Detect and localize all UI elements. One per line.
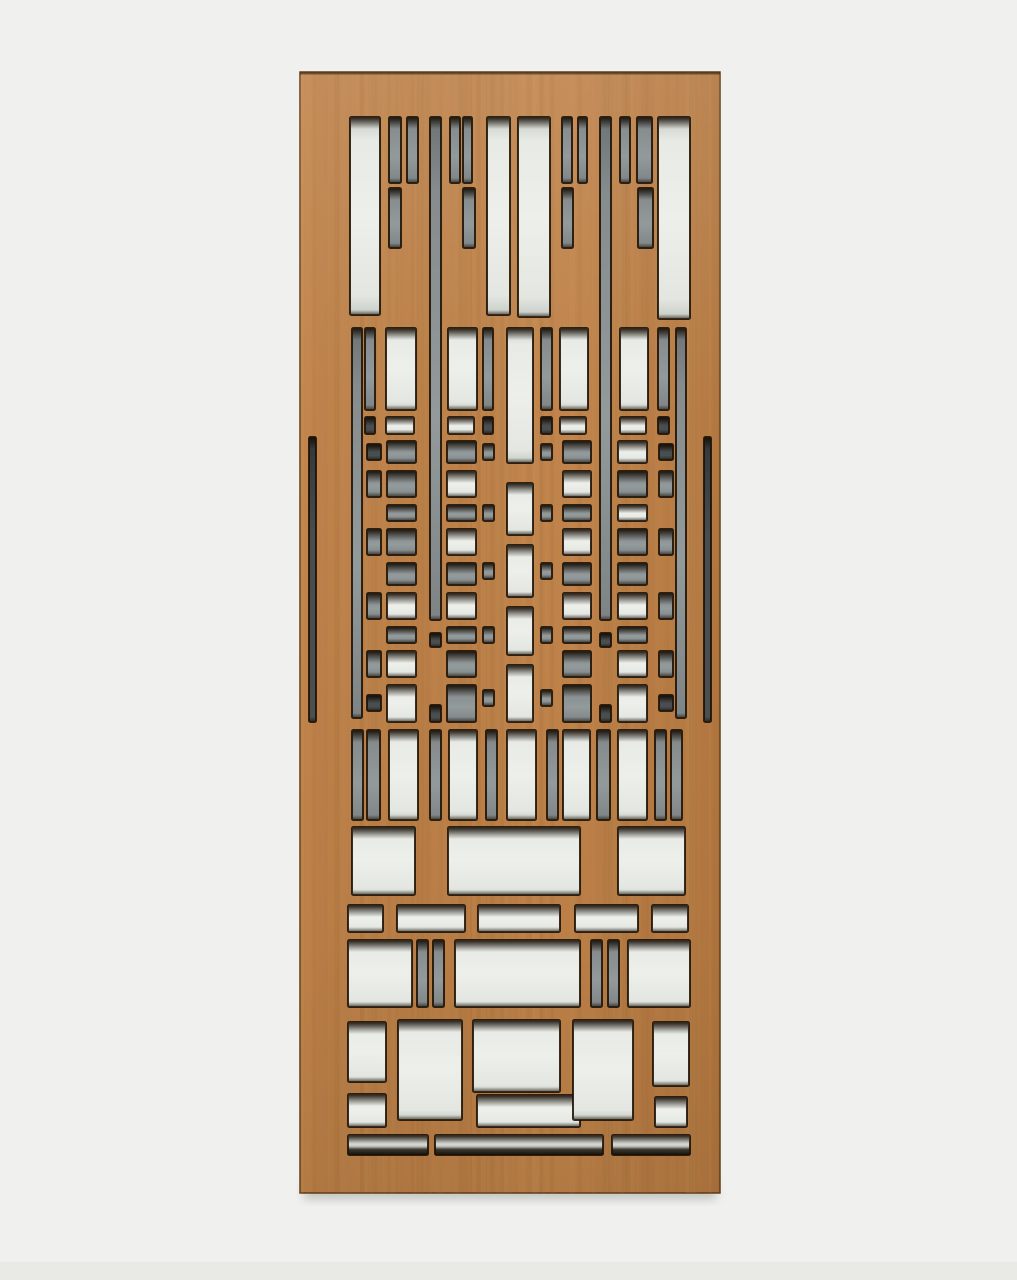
cutout-open-gray [659,471,673,497]
cutout-frosted-white [618,593,647,619]
cutout-frosted-strip [348,1135,428,1155]
cutout-frosted-white [387,593,416,619]
cutout-open-gray [591,940,602,1007]
cutout-open-gray [483,563,494,579]
cutout-open-gray [562,117,572,183]
cutout-frosted-white [518,117,550,317]
cutout-open-gray [541,505,552,521]
cutout-frosted-white [563,471,591,497]
cutout-open-gray [417,940,428,1007]
cutout-shadow-slot [541,417,552,434]
cutout-open-gray [367,529,381,555]
cutout-frosted-strip [612,1135,690,1155]
cutout-frosted-white [652,905,688,932]
cutout-open-gray [563,505,591,521]
cutout-open-gray [387,471,416,497]
cutout-open-gray [638,188,653,248]
cutout-open-gray [430,730,441,820]
cutout-open-gray [447,563,476,585]
cutout-frosted-white [618,441,647,463]
cutout-open-gray [541,627,552,643]
cutout-frosted-white [655,1097,687,1127]
cutout-frosted-white [398,1020,462,1120]
cutout-open-gray [447,651,476,677]
cutout-frosted-white [449,730,477,820]
cutout-open-gray [365,328,375,410]
photo-background-edge [0,1262,1017,1280]
cutout-frosted-white [563,529,591,555]
cutout-shadow-slot [367,444,381,460]
cutout-open-gray [387,505,416,521]
cutout-open-gray [430,117,441,620]
cutout-frosted-white [348,1094,386,1127]
cutout-open-gray [563,685,591,722]
cutout-frosted-white [389,730,418,820]
cutout-frosted-white [448,328,477,410]
cutout-open-gray [367,651,381,677]
product-photo [0,0,1017,1280]
cutout-open-gray [671,730,682,820]
cutout-shadow-slot [658,417,669,434]
cutout-open-gray [659,593,673,619]
cutout-frosted-white [560,328,588,410]
cutout-frosted-white [348,905,383,932]
cutout-open-gray [447,505,476,521]
wood-panel-scene [0,0,1017,1280]
cutout-open-gray [447,627,476,643]
cutout-open-gray [618,563,647,585]
cutout-open-gray [387,627,416,643]
cutout-frosted-white [478,905,560,932]
cutout-frosted-white [563,730,590,820]
cutout-frosted-white [350,117,380,315]
cutout-open-gray [352,730,363,820]
cutout-shadow-slot [659,444,673,460]
cutout-shadow-slot [600,705,611,722]
cutout-open-gray [541,444,552,460]
cutout-open-gray [578,117,587,183]
cutout-open-gray [563,627,591,643]
cutout-frosted-white [448,417,474,434]
cutout-frosted-white [387,651,416,677]
wood-panel [300,72,722,1193]
cutout-open-gray [637,117,652,183]
cutout-frosted-white [618,827,685,895]
cutout-open-gray [483,690,494,706]
cutout-open-gray [367,730,380,820]
cutout-shadow-slot [704,437,711,722]
cutout-frosted-white [507,328,533,463]
cutout-open-gray [608,940,619,1007]
cutout-open-gray [618,529,647,555]
cutout-frosted-white [618,685,647,722]
cutout-open-gray [387,441,416,463]
cutout-frosted-white [575,905,638,932]
cutout-open-gray [597,730,610,820]
cutout-frosted-white [618,505,647,521]
cutout-shadow-slot [430,633,441,647]
cutout-open-gray [658,328,669,410]
cutout-frosted-white [447,471,476,497]
cutout-frosted-white [507,607,533,655]
cutout-open-gray [483,444,494,460]
cutout-open-gray [659,651,673,677]
cutout-open-gray [352,328,362,718]
cutout-frosted-strip [435,1135,603,1155]
cutout-shadow-slot [600,633,611,647]
cutout-open-gray [486,730,497,820]
cutout-open-gray [447,441,476,463]
cutout-open-gray [367,593,381,619]
cutout-open-gray [659,529,673,555]
cutout-open-gray [655,730,666,820]
cutout-open-gray [547,730,558,820]
cutout-frosted-white [573,1020,633,1120]
cutout-open-gray [563,651,591,677]
cutout-frosted-white [653,1022,689,1086]
cutout-open-gray [387,529,416,555]
cutout-frosted-white [507,665,533,722]
cutout-shadow-slot [483,417,493,434]
cutout-frosted-white [387,685,416,722]
cutout-open-gray [620,117,630,183]
cutout-frosted-white [618,730,647,820]
cutout-frosted-white [507,483,533,535]
cutout-open-gray [541,328,552,410]
cutout-open-gray [450,117,460,183]
cutout-frosted-white [352,827,415,895]
cutout-frosted-white [447,529,476,555]
cutout-shadow-slot [365,417,375,434]
cutout-frosted-white [397,905,465,932]
cutout-open-gray [407,117,418,183]
cutout-open-gray [563,441,591,463]
cutout-shadow-slot [430,705,441,722]
cutout-frosted-white [348,1022,386,1082]
cutout-open-gray [676,328,686,718]
cutout-frosted-white [658,117,690,319]
cutout-open-gray [447,685,476,722]
cutout-frosted-white [487,117,510,315]
cutout-open-gray [389,117,401,183]
cutout-open-gray [618,471,647,497]
cutout-frosted-white [620,417,646,434]
cutout-frosted-white [560,417,586,434]
cutout-shadow-slot [367,695,381,711]
cutout-open-gray [618,627,647,643]
cutout-open-gray [562,188,573,248]
cutout-open-gray [463,188,475,248]
cutout-frosted-white [473,1020,560,1092]
cutout-frosted-white [628,940,690,1007]
cutout-frosted-white [563,593,591,619]
cutout-frosted-white [386,417,414,434]
cutout-open-gray [483,328,493,410]
cutout-open-gray [387,563,416,585]
cutout-frosted-white [448,827,580,895]
cutout-frosted-white [507,730,536,820]
cutout-shadow-slot [309,437,316,722]
cutout-open-gray [541,563,552,579]
cutout-frosted-white [447,593,476,619]
panel-top-edge [300,72,720,75]
cutout-open-gray [433,940,444,1007]
cutout-open-gray [600,117,611,620]
cutout-frosted-white [618,651,647,677]
cutout-frosted-white [477,1095,580,1127]
cutout-open-gray [563,563,591,585]
cutout-frosted-white [455,940,580,1007]
cutout-shadow-slot [659,695,673,711]
cutout-open-gray [483,627,494,643]
cutout-open-gray [541,690,552,706]
cutout-open-gray [463,117,472,183]
cutout-frosted-white [386,328,416,410]
cutout-frosted-white [507,545,533,597]
cutout-open-gray [389,188,401,248]
cutout-frosted-white [620,328,648,410]
cutout-open-gray [367,471,381,497]
cutout-frosted-white [348,940,412,1007]
cutout-open-gray [483,505,494,521]
